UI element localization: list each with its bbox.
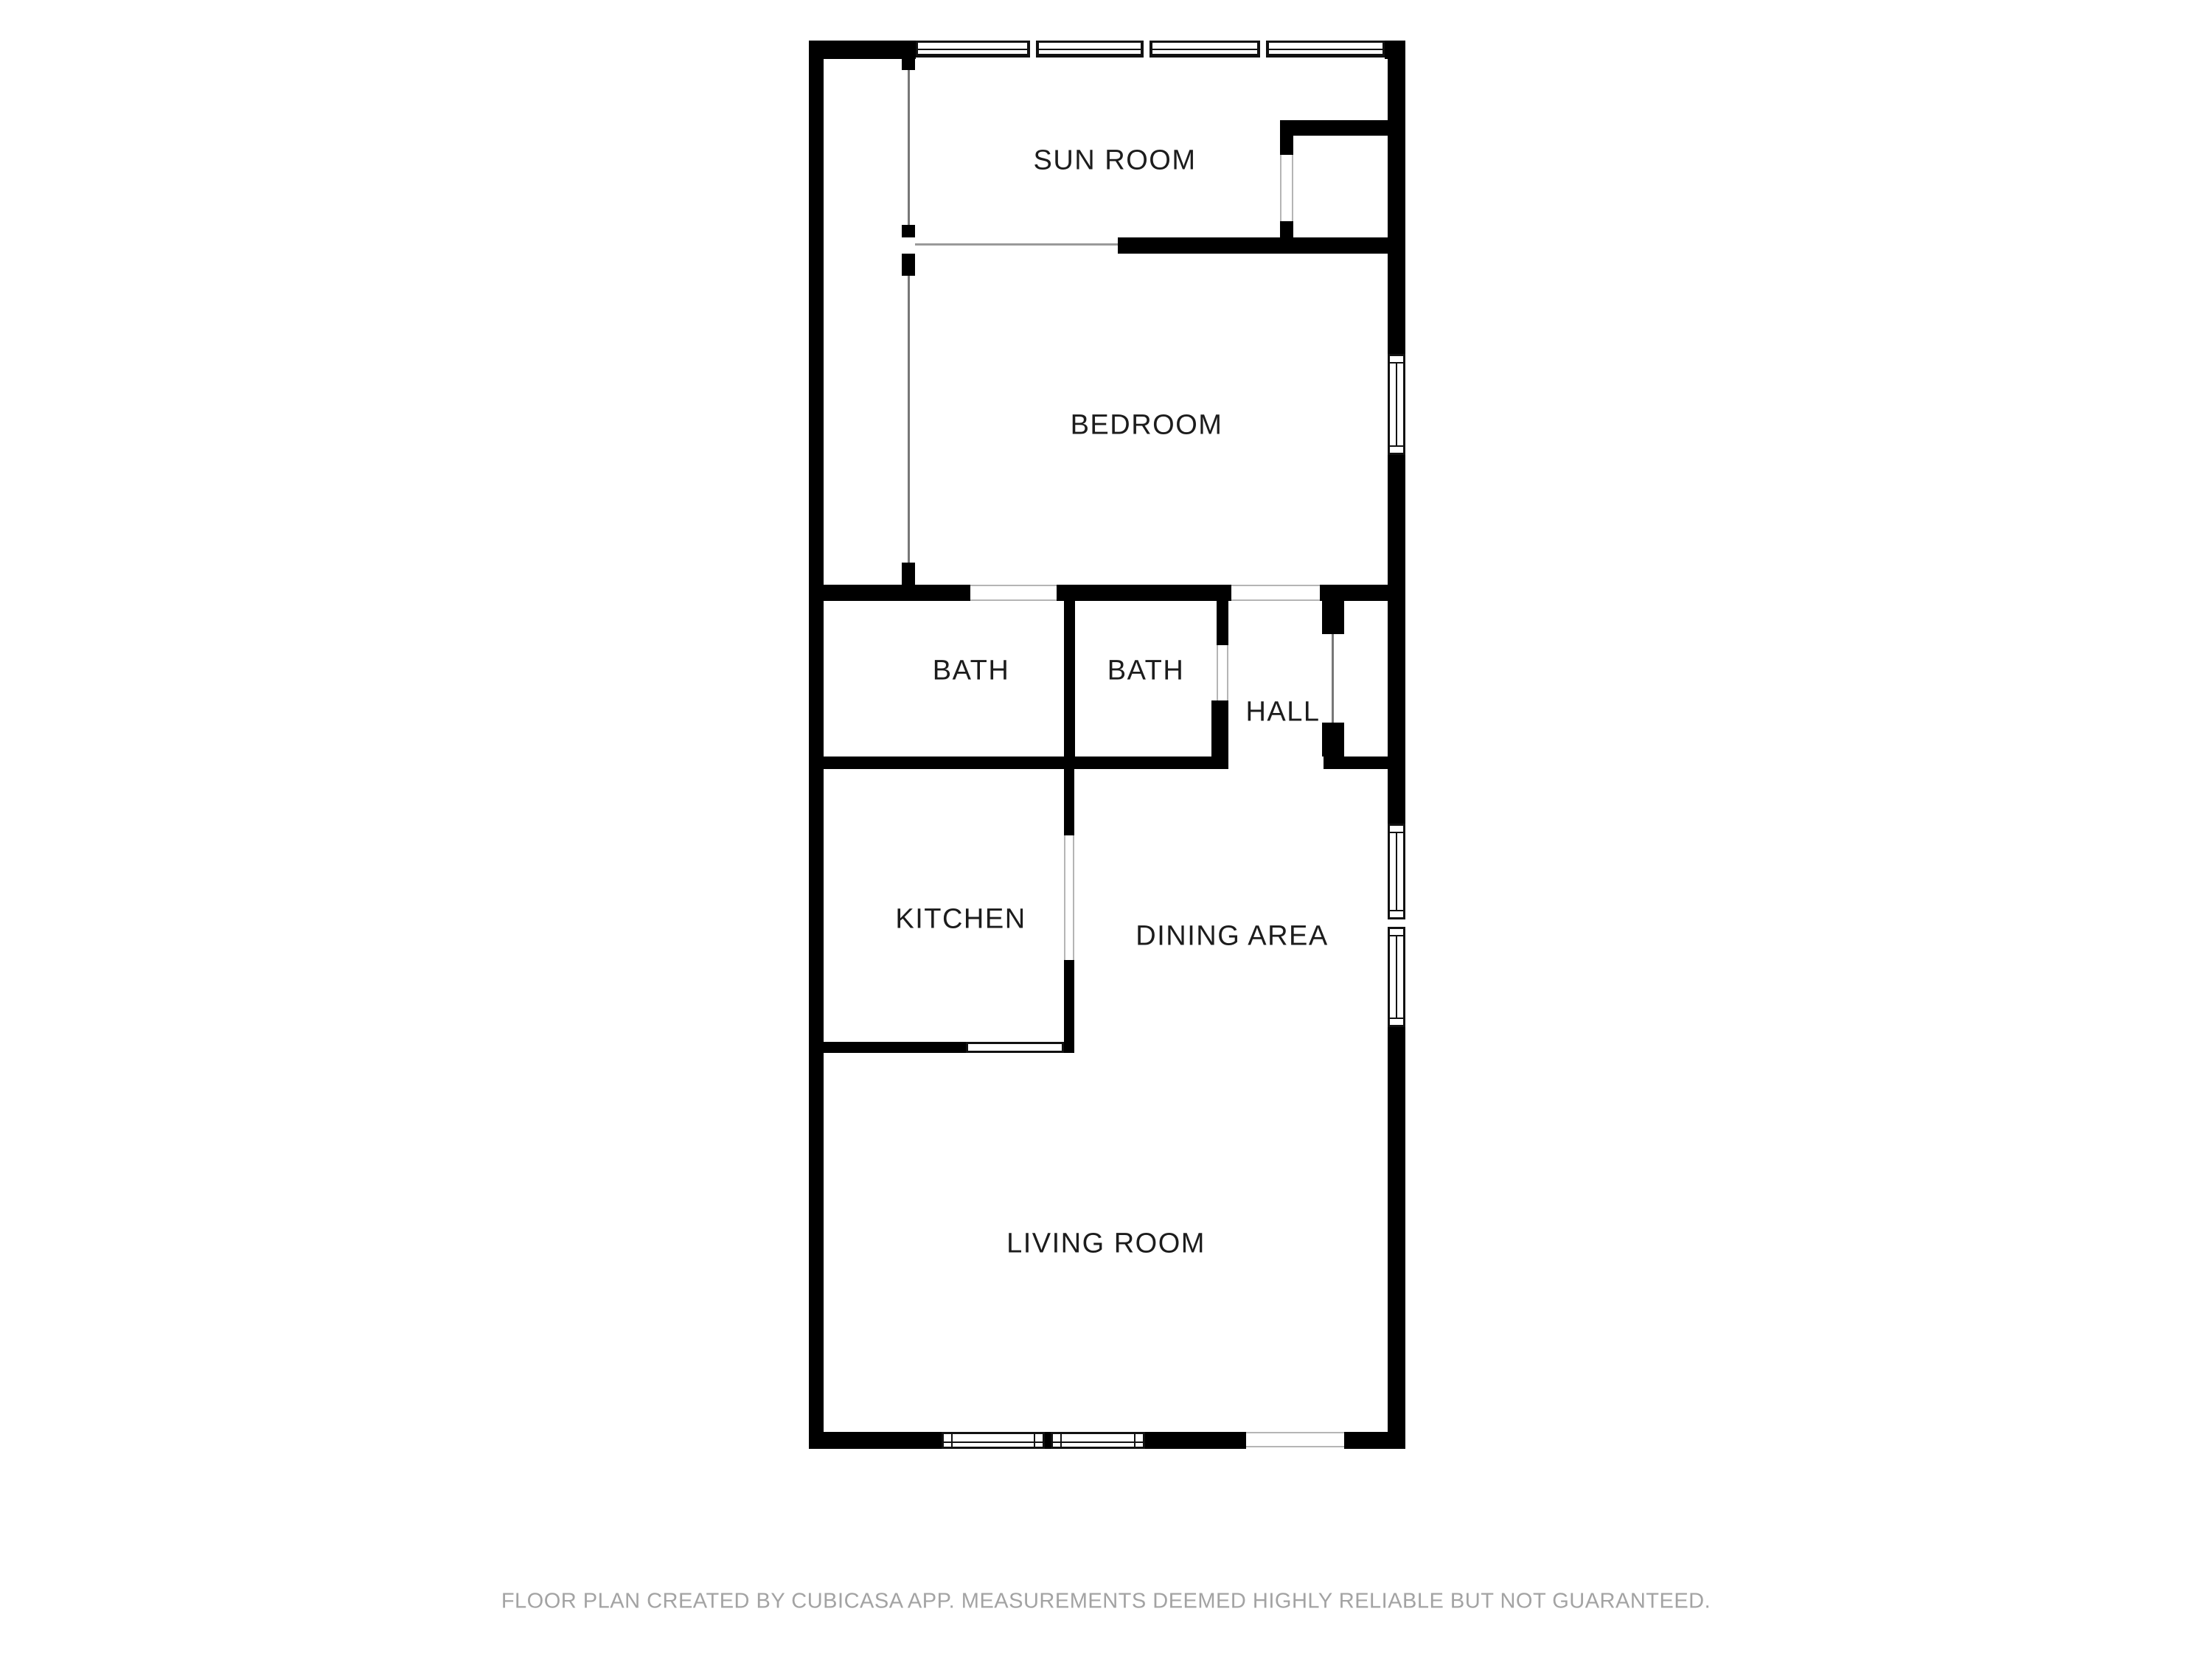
window-dining-right-2 [1388,927,1405,1027]
wall-bottom-mullion [1045,1432,1051,1449]
wall-mid-right [1324,757,1405,769]
wall-bedroom-bottom-2 [1057,585,1231,601]
window-bedroom-right-frame [1390,445,1403,447]
wall-hall-stub-bottom [1322,723,1344,757]
wall-bath-divider [1064,601,1075,758]
door-edge-closet-right [1292,155,1293,221]
door-edge-entry-bottom [1246,1446,1344,1447]
wall-closet-top [1280,120,1388,136]
window-bottom-2-pane-line [1053,1441,1143,1443]
window-dining-right-2-frame [1390,935,1403,936]
room-label-kitchen: KITCHEN [895,904,1026,936]
window-dining-right-1 [1388,824,1405,919]
window-bedroom-right-pane-line [1396,364,1397,445]
window-kitchen-pass [966,1042,1064,1053]
door-edge-bath1-bottom [970,599,1057,601]
partition-line-sunroom-strip [908,70,910,225]
wall-closet-left-upper [1280,136,1293,155]
wall-bottom-1 [809,1432,942,1449]
room-label-dining-area: DINING AREA [1135,921,1328,953]
window-dining-right-2-pane-line [1396,936,1397,1018]
window-bottom-1-pane-line [944,1441,1043,1443]
window-sunroom-band-mullion [1257,41,1269,58]
door-edge-bath1-top [970,585,1057,586]
wall-kitchen-div-upper [1064,769,1074,835]
door-edge-entry-top [1246,1432,1344,1433]
window-sunroom-band-mullion [1027,41,1039,58]
wall-top-left-corner [809,41,916,59]
door-edge-hall-bottom [1231,599,1320,601]
wall-strip-stub-4 [902,563,915,585]
room-label-living-room: LIVING ROOM [1006,1228,1206,1260]
door-edge-kitchen-left [1064,835,1065,960]
window-sunroom-band-mullion [1141,41,1152,58]
wall-kitchen-div-lower [1064,960,1074,1053]
window-dining-right-1-frame [1390,832,1403,833]
window-sunroom-band [916,41,1385,58]
door-edge-kitchen-right [1073,835,1074,960]
wall-strip-stub-1 [902,58,915,70]
partition-line-hall-strip [1332,634,1334,723]
window-bottom-2-frame [1134,1434,1135,1447]
wall-strip-stub-3 [902,254,915,276]
door-edge-closet-left [1280,155,1281,221]
window-bottom-2 [1051,1432,1145,1449]
window-bottom-2-frame [1060,1434,1062,1447]
window-bottom-1 [942,1432,1045,1449]
wall-bedroom-bottom-3 [1320,585,1405,601]
wall-outer-right-lower [1388,1027,1405,1449]
window-dining-right-1-pane-line [1396,833,1397,910]
door-edge-bath2-right [1227,645,1228,700]
wall-hall-stub-top [1322,601,1344,634]
wall-bath2-right-lower [1211,700,1228,758]
wall-kitchen-bottom [809,1042,966,1053]
wall-mid-left [809,757,1228,769]
room-label-bath-2: BATH [1107,655,1185,687]
wall-outer-right-upper [1388,41,1405,354]
wall-outer-left [809,41,824,1449]
floorplan-canvas: SUN ROOMBEDROOMBATHBATHHALLKITCHENDINING… [0,0,2212,1659]
wall-strip-stub-2 [902,225,915,237]
wall-sunroom-bottom [1118,237,1405,254]
opening-line-sunroom-bedroom [915,243,1118,246]
window-dining-right-2-frame [1390,1018,1403,1019]
window-bottom-1-frame [951,1434,953,1447]
room-label-bath-1: BATH [933,655,1010,687]
wall-bedroom-bottom-1 [809,585,970,601]
room-label-bedroom: BEDROOM [1071,410,1223,442]
window-bedroom-right [1388,354,1405,455]
window-dining-right-1-frame [1390,910,1403,911]
wall-bottom-3 [1344,1432,1405,1449]
wall-bottom-2 [1145,1432,1246,1449]
footer-disclaimer: FLOOR PLAN CREATED BY CUBICASA APP. MEAS… [501,1590,1711,1614]
partition-line-bedroom-strip [908,276,910,563]
wall-closet-left-lower [1280,221,1293,237]
wall-bath2-right-upper [1217,601,1228,645]
door-edge-hall-top [1231,585,1320,586]
window-bedroom-right-frame [1390,362,1403,364]
room-label-hall: HALL [1245,697,1320,728]
room-label-sun-room: SUN ROOM [1034,145,1197,177]
window-bottom-1-frame [1034,1434,1035,1447]
door-edge-bath2-left [1217,645,1218,700]
